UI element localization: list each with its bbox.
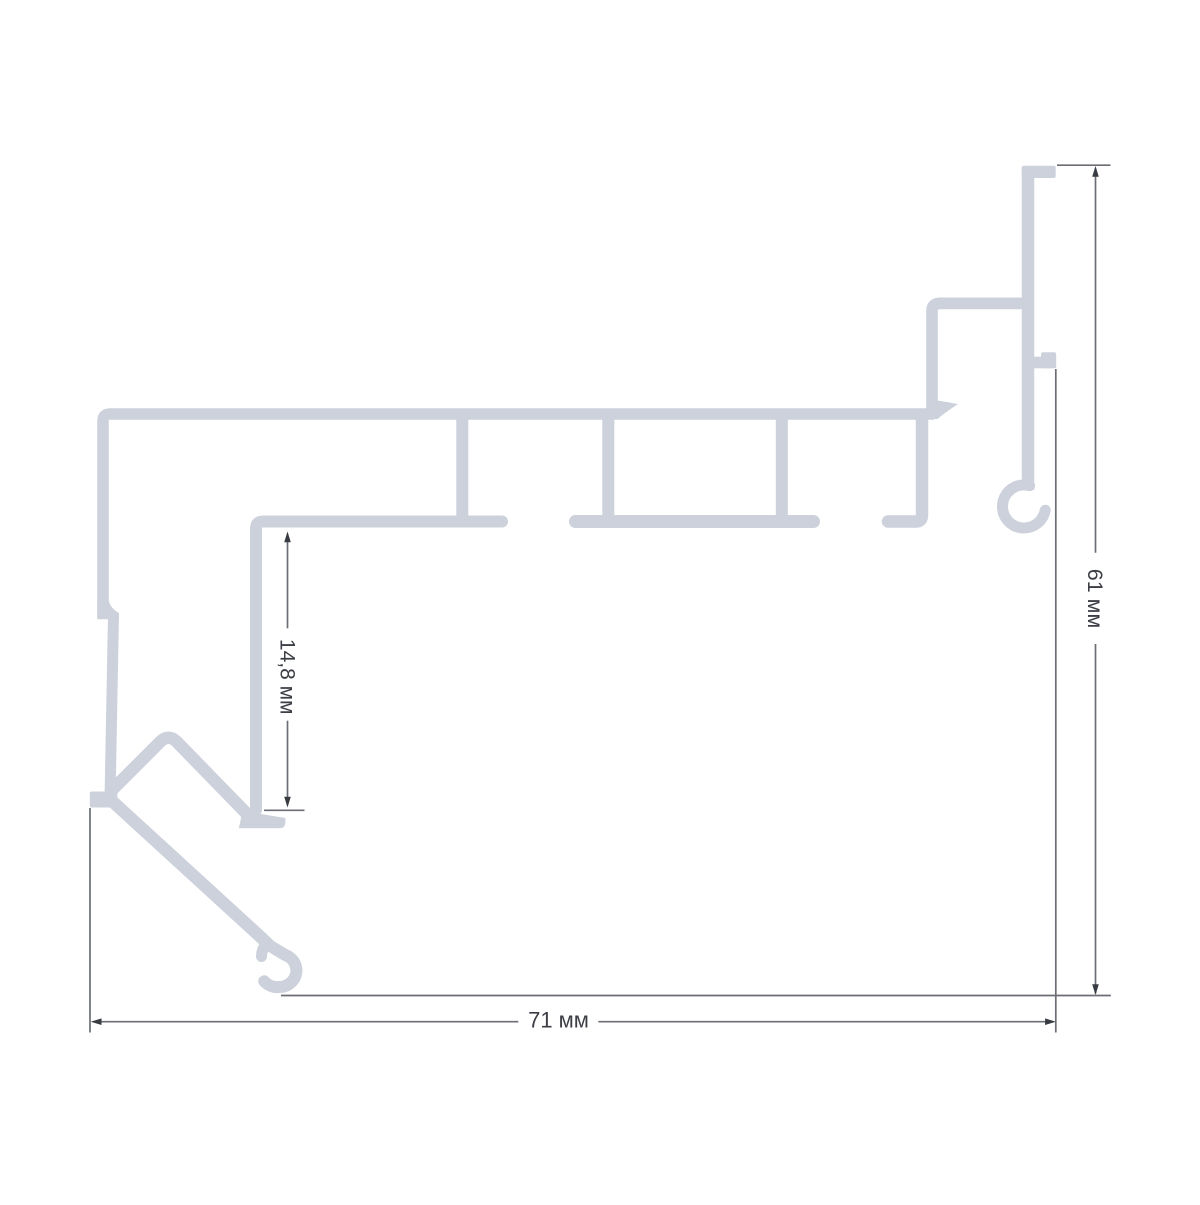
svg-text:61 мм: 61 мм [1083, 569, 1107, 628]
svg-text:71 мм: 71 мм [528, 1008, 589, 1033]
svg-text:14,8 мм: 14,8 мм [276, 639, 299, 715]
